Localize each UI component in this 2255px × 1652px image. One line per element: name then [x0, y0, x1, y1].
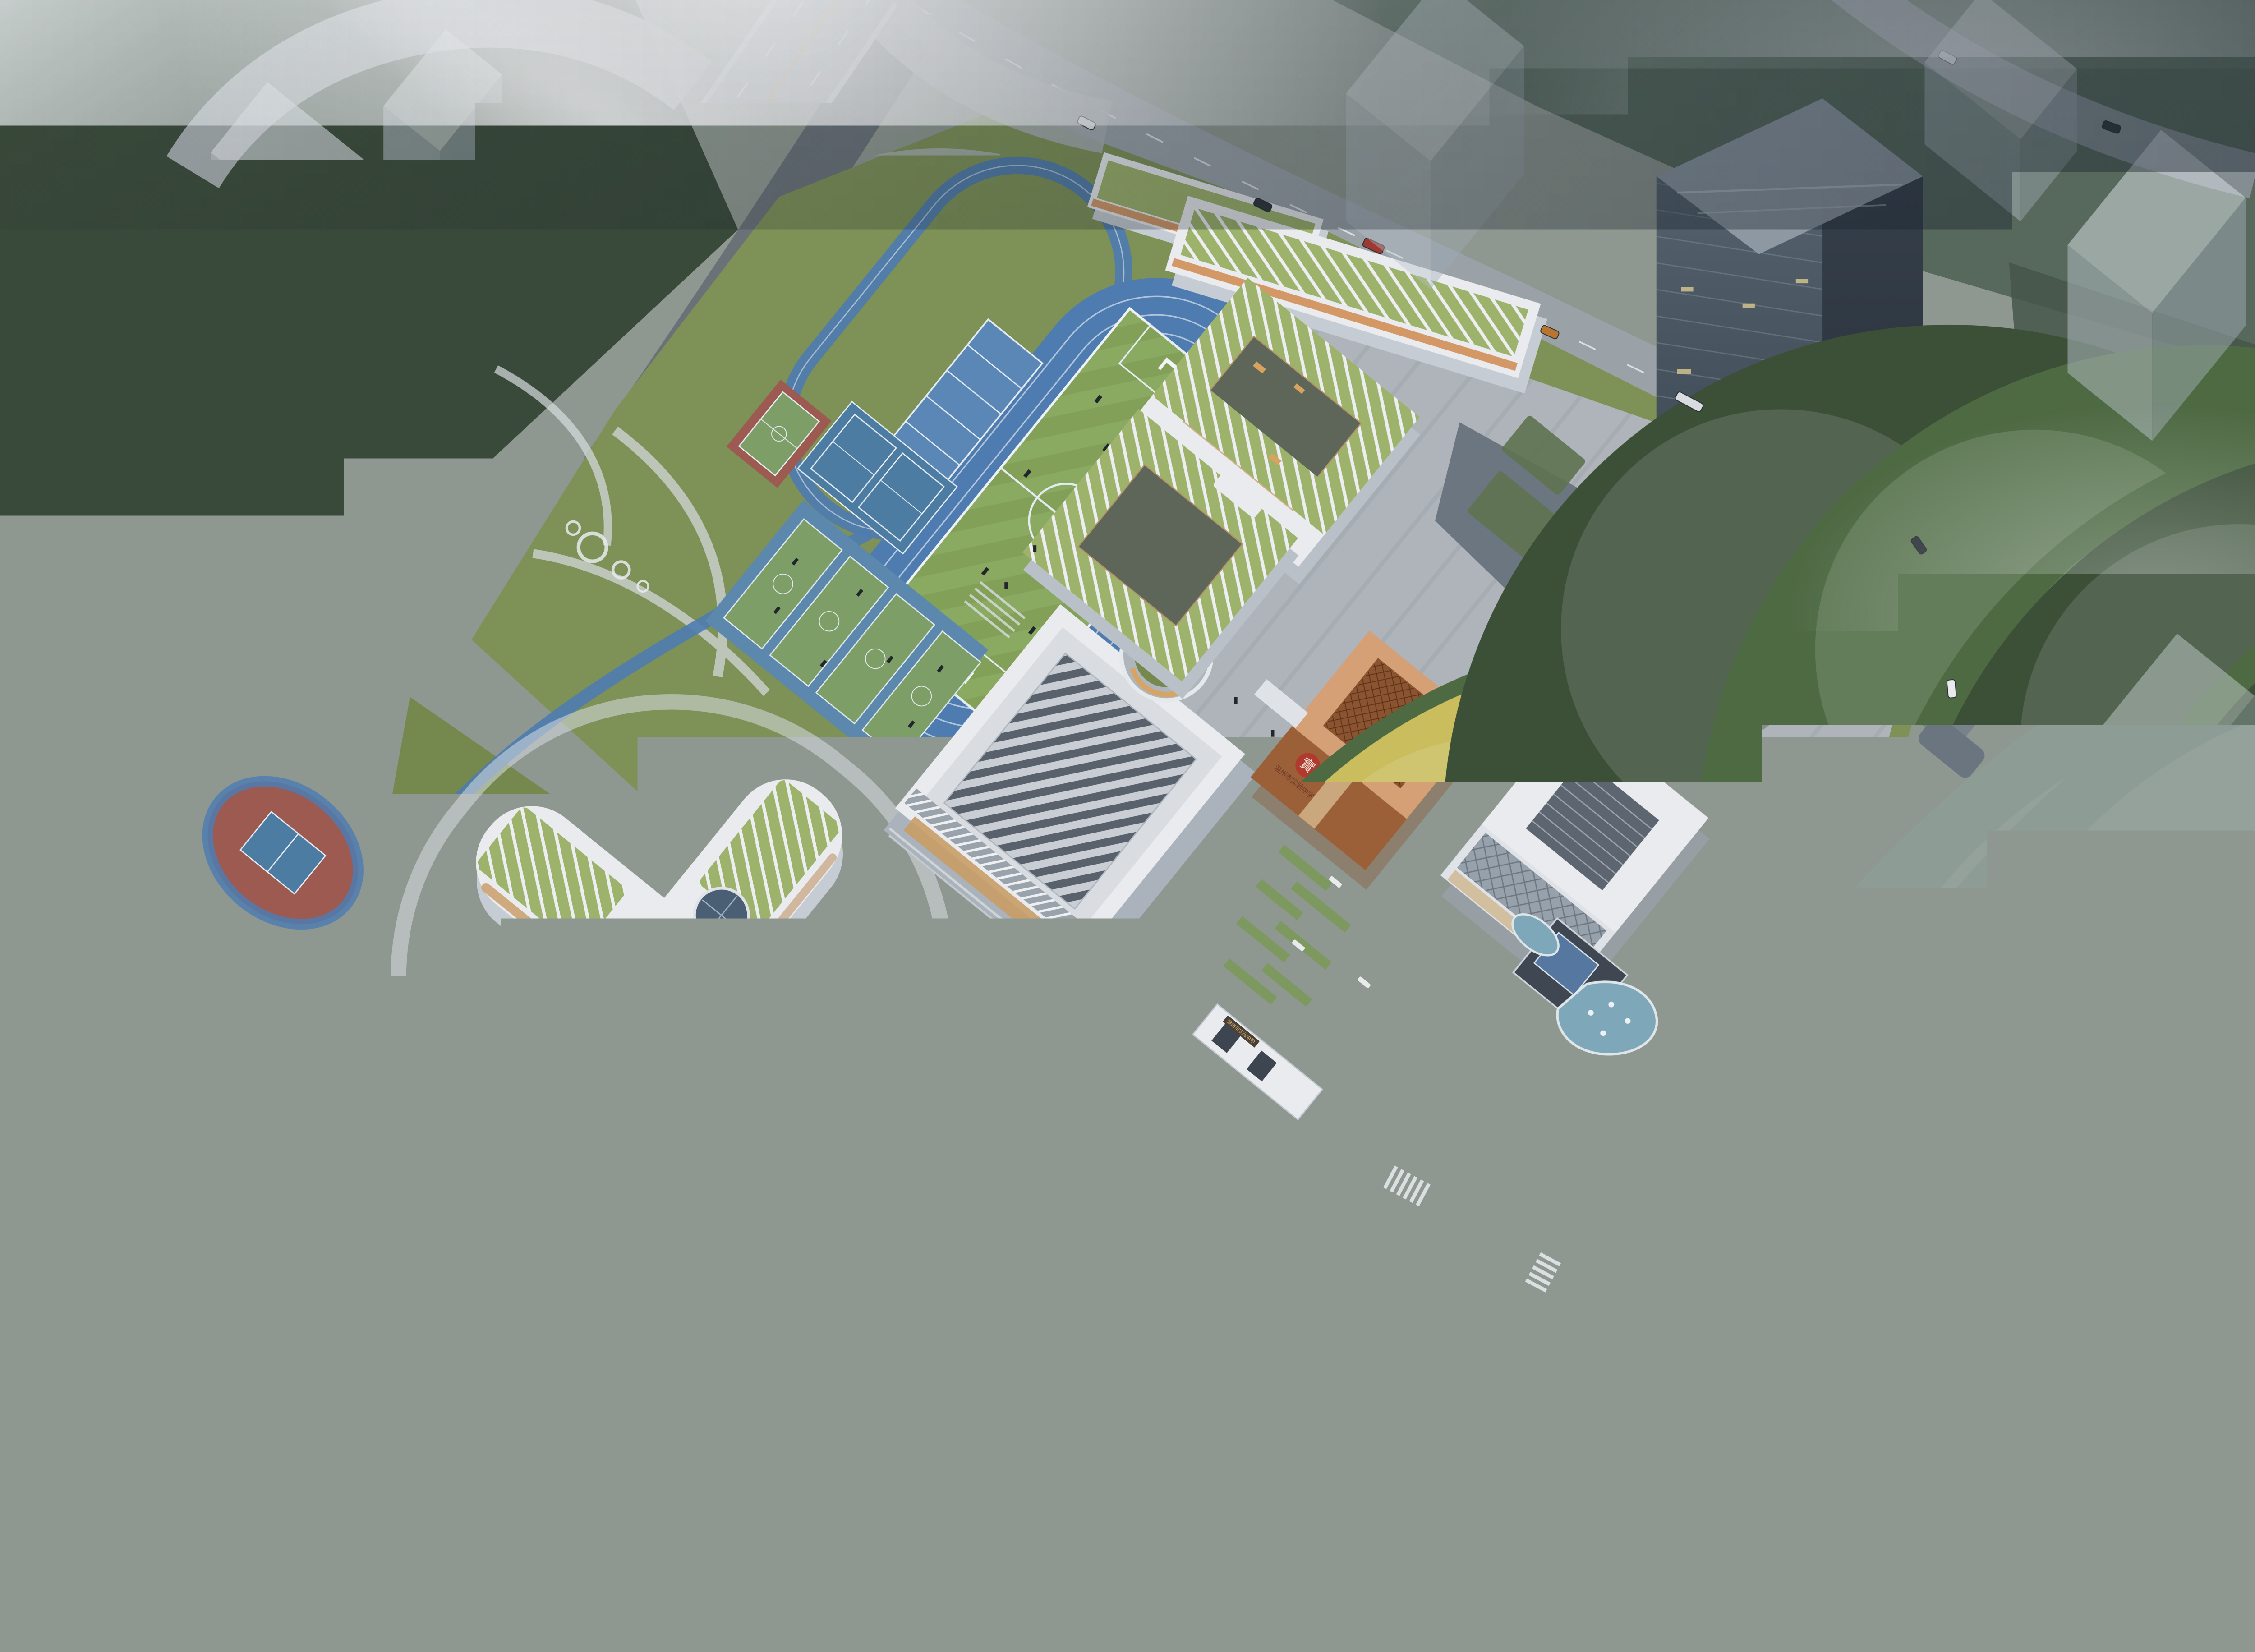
aerial-rendering: 實 温州市实验中学 温州市实验中学: [0, 0, 2255, 1502]
atmosphere: [0, 0, 2255, 1502]
vignette-bottom: [0, 0, 2255, 1502]
